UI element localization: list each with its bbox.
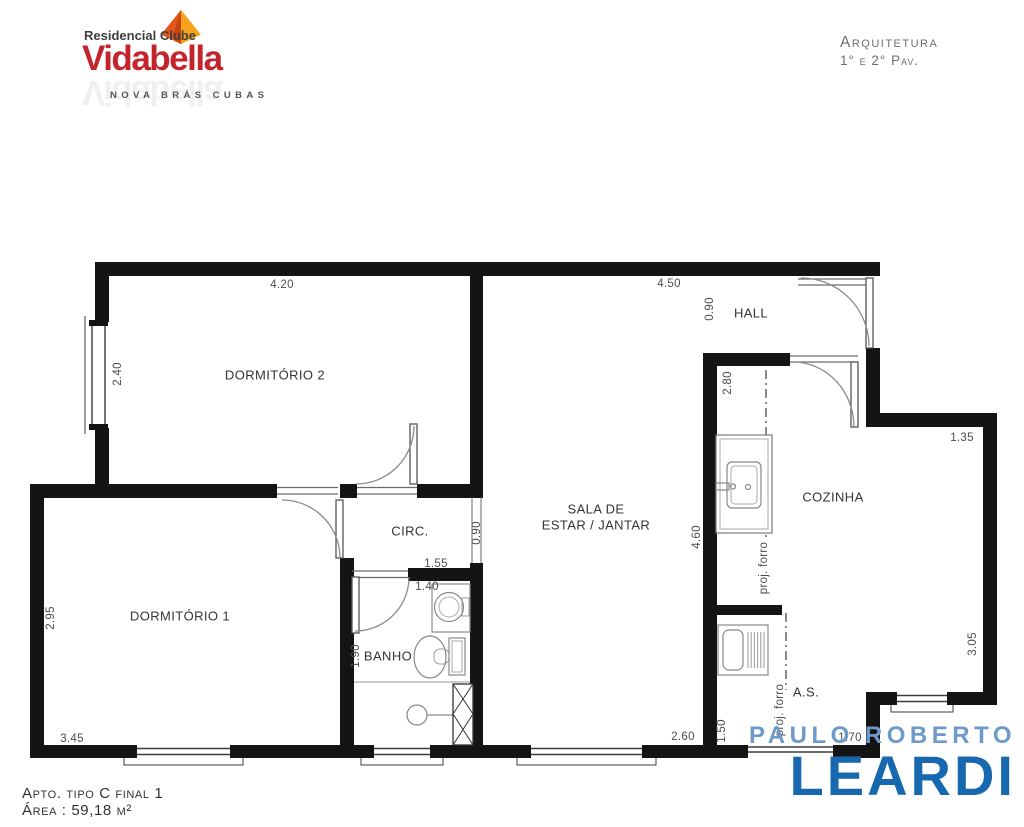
apartment-type: Apto. tipo C final 1 [22,785,163,802]
doors-layer [277,278,873,633]
window-sala [517,745,656,765]
room-label-sala-line2: ESTAR / JANTAR [542,518,650,533]
window-banho [361,745,443,765]
dim-sala-depth: 4.60 [691,525,703,549]
dim-dorm2-window: 2.40 [112,362,124,386]
apartment-info: Apto. tipo C final 1 Área : 59,18 m² [22,785,163,819]
dim-banho-depth: 1.90 [350,644,362,668]
room-label-circ: CIRC. [391,524,428,539]
room-label-hall: HALL [734,306,768,321]
toilet-icon [414,636,465,678]
room-label-dormitorio2: DORMITÓRIO 2 [225,368,325,383]
title-block: Arquitetura 1° e 2° Pav. [840,34,938,68]
floorplan-drawing [0,0,1024,827]
logo-nova-bras-cubas: NOVA BRÁS CUBAS [110,90,268,101]
dim-as-width: 1.50 [716,719,728,743]
door-cozinha [790,356,858,427]
door-banho [352,571,409,633]
vidabella-logo: Residencial Clube Vidabella Vidabella NO… [60,6,270,116]
window-cozinha [891,692,953,712]
dim-sala-window: 2.60 [671,731,695,743]
laundry-tank-icon [718,625,768,675]
leardi-logo-leardi: LEARDI [749,748,1016,804]
dim-sala-width: 4.50 [657,278,681,290]
walls-layer [30,262,997,758]
windows-layer [85,316,953,765]
dim-dorm1-depth: 2.95 [45,606,57,630]
dim-banho-width: 1.40 [415,581,439,593]
kitchen-counter-sink-icon [716,435,772,533]
dim-circ-opening: 0.90 [471,521,483,545]
dim-cozinha-notch: 1.35 [950,432,974,444]
room-label-as: A.S. [793,685,819,700]
dim-hall-depth: 0.90 [704,297,716,321]
floorplan-page: DORMITÓRIO 2 DORMITÓRIO 1 CIRC. BANHO SA… [0,0,1024,827]
apartment-area: Área : 59,18 m² [22,802,163,819]
dim-dorm1-width: 3.45 [60,733,84,745]
proj-forro-label-cozinha: proj. forro [758,542,770,595]
title-block-line2: 1° e 2° Pav. [840,53,938,68]
title-block-line1: Arquitetura [840,34,938,52]
dim-cozinha-depth: 3.05 [967,632,979,656]
dim-banho-width-top: 1.55 [424,558,448,570]
room-label-dormitorio1: DORMITÓRIO 1 [130,609,230,624]
dim-dorm2-width: 4.20 [270,279,294,291]
room-label-cozinha: COZINHA [802,490,863,505]
door-dormitorio1 [277,488,343,559]
shaft-hatch [453,684,473,745]
window-dorm2 [85,316,110,434]
room-label-sala-line1: SALA DE [568,502,625,517]
room-label-banho: BANHO [364,649,412,664]
window-dorm1 [124,745,243,765]
door-dormitorio2 [356,424,417,494]
dim-cozinha-door-wall: 2.80 [722,371,734,395]
door-entry [798,278,873,348]
leardi-logo: PAULO ROBERTO LEARDI [749,722,1016,804]
